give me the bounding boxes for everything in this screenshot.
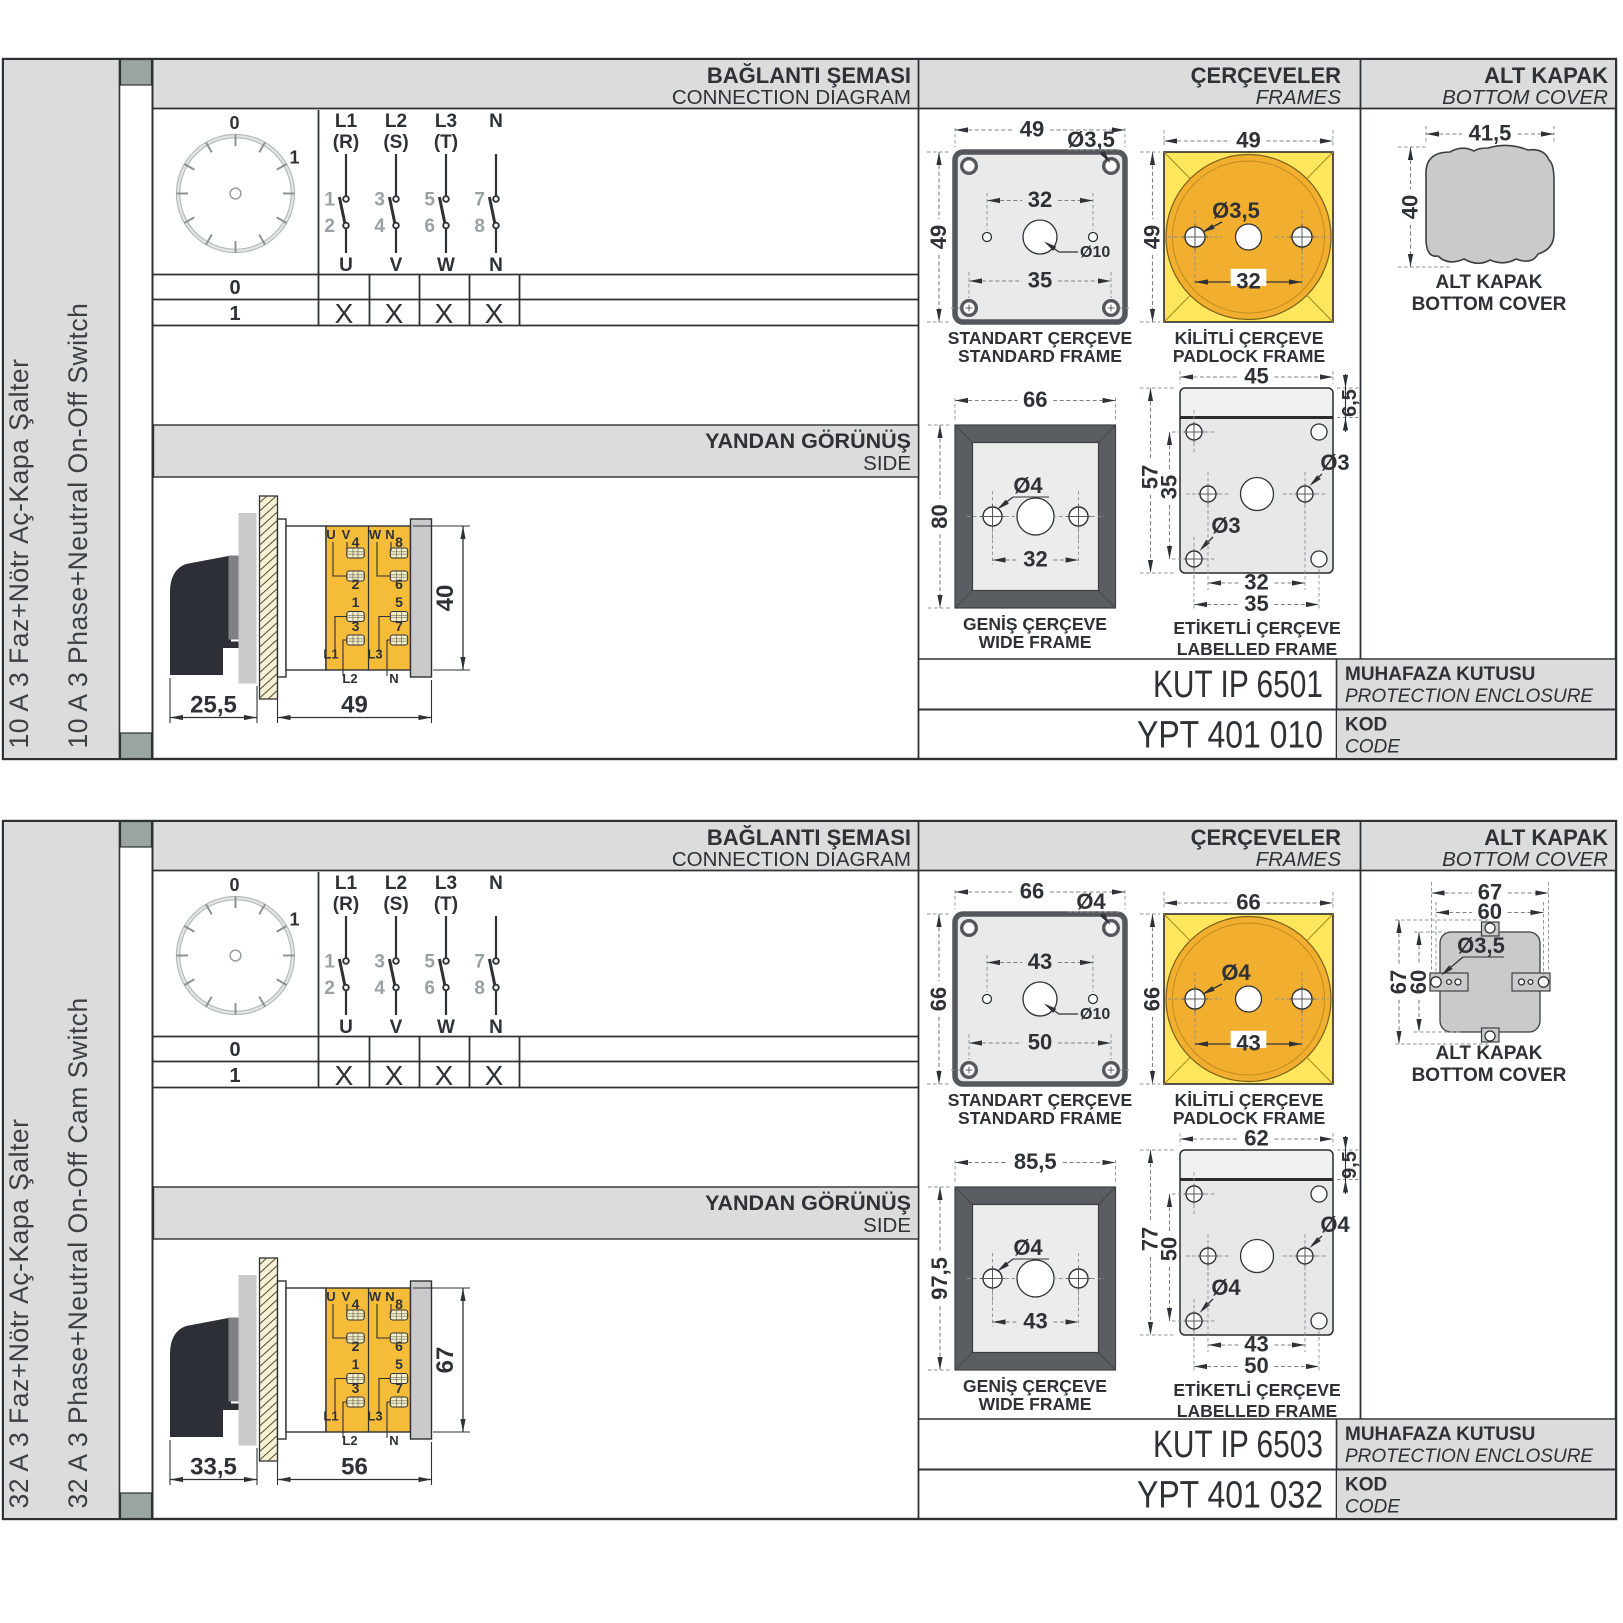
svg-text:W: W xyxy=(369,527,382,542)
svg-text:7: 7 xyxy=(395,618,403,634)
svg-text:1: 1 xyxy=(324,952,335,973)
svg-text:10 A 3 Phase+Neutral On-Off Sw: 10 A 3 Phase+Neutral On-Off Switch xyxy=(63,303,93,749)
svg-text:1: 1 xyxy=(324,190,335,211)
svg-text:8: 8 xyxy=(474,978,485,999)
svg-text:2: 2 xyxy=(352,576,360,592)
svg-text:X: X xyxy=(385,298,404,329)
svg-text:Ø4: Ø4 xyxy=(1076,889,1106,914)
svg-text:6: 6 xyxy=(424,216,435,237)
svg-text:25,5: 25,5 xyxy=(190,692,237,719)
svg-text:32: 32 xyxy=(1236,269,1260,294)
svg-text:KİLİTLİ ÇERÇEVE: KİLİTLİ ÇERÇEVE xyxy=(1175,328,1324,348)
svg-text:ETİKETLİ ÇERÇEVE: ETİKETLİ ÇERÇEVE xyxy=(1173,618,1340,638)
svg-text:FRAMES: FRAMES xyxy=(1256,848,1342,871)
svg-text:STANDARD FRAME: STANDARD FRAME xyxy=(958,346,1122,366)
svg-text:0: 0 xyxy=(229,277,240,299)
svg-text:8: 8 xyxy=(474,216,485,237)
svg-text:0: 0 xyxy=(229,875,239,895)
svg-text:35: 35 xyxy=(1244,591,1268,616)
svg-text:1: 1 xyxy=(229,1065,240,1087)
svg-text:BAĞLANTI ŞEMASI: BAĞLANTI ŞEMASI xyxy=(707,825,911,850)
svg-text:FRAMES: FRAMES xyxy=(1256,86,1342,109)
svg-text:L2: L2 xyxy=(342,1433,357,1448)
svg-text:YANDAN GÖRÜNÜŞ: YANDAN GÖRÜNÜŞ xyxy=(705,428,911,453)
svg-text:0: 0 xyxy=(229,1039,240,1061)
svg-text:62: 62 xyxy=(1244,1126,1268,1151)
svg-text:BOTTOM COVER: BOTTOM COVER xyxy=(1442,86,1608,109)
svg-text:10 A 3 Faz+Nötr Aç-Kapa Şalter: 10 A 3 Faz+Nötr Aç-Kapa Şalter xyxy=(4,359,34,749)
svg-text:49: 49 xyxy=(341,692,368,719)
svg-text:L3: L3 xyxy=(367,1409,382,1424)
svg-text:KUT IP 6501: KUT IP 6501 xyxy=(1153,664,1323,706)
svg-text:32: 32 xyxy=(1023,547,1047,572)
svg-text:(T): (T) xyxy=(434,894,458,915)
svg-text:3: 3 xyxy=(374,952,385,973)
svg-text:LABELLED FRAME: LABELLED FRAME xyxy=(1177,639,1337,659)
svg-text:X: X xyxy=(485,298,504,329)
svg-text:SIDE: SIDE xyxy=(863,1214,911,1237)
svg-text:1: 1 xyxy=(229,303,240,325)
svg-text:L1: L1 xyxy=(335,111,358,132)
svg-text:CONNECTION DIAGRAM: CONNECTION DIAGRAM xyxy=(672,848,911,871)
svg-text:U: U xyxy=(326,527,335,542)
svg-text:43: 43 xyxy=(1028,949,1052,974)
svg-text:L2: L2 xyxy=(385,111,407,132)
svg-text:97,5: 97,5 xyxy=(927,1257,952,1300)
svg-text:67: 67 xyxy=(432,1347,459,1374)
svg-text:L3: L3 xyxy=(435,111,457,132)
svg-text:L1: L1 xyxy=(335,873,358,894)
svg-text:49: 49 xyxy=(926,225,951,249)
svg-text:Ø4: Ø4 xyxy=(1320,1212,1350,1237)
svg-text:Ø3,5: Ø3,5 xyxy=(1067,127,1115,152)
svg-text:Ø3: Ø3 xyxy=(1211,513,1240,538)
svg-text:40: 40 xyxy=(1398,195,1423,219)
svg-text:80: 80 xyxy=(927,504,952,528)
svg-text:BAĞLANTI ŞEMASI: BAĞLANTI ŞEMASI xyxy=(707,63,911,88)
svg-text:N: N xyxy=(385,527,394,542)
svg-text:32 A 3 Faz+Nötr Aç-Kapa Şalter: 32 A 3 Faz+Nötr Aç-Kapa Şalter xyxy=(4,1119,34,1509)
svg-text:SIDE: SIDE xyxy=(863,452,911,475)
svg-text:V: V xyxy=(390,1017,403,1038)
svg-text:YANDAN GÖRÜNÜŞ: YANDAN GÖRÜNÜŞ xyxy=(705,1190,911,1215)
svg-text:3: 3 xyxy=(352,618,360,634)
svg-text:CODE: CODE xyxy=(1345,737,1400,758)
svg-text:56: 56 xyxy=(341,1454,368,1481)
svg-text:66: 66 xyxy=(1023,387,1047,412)
svg-text:1: 1 xyxy=(289,910,299,930)
svg-text:0: 0 xyxy=(229,113,239,133)
svg-text:(R): (R) xyxy=(333,894,359,915)
svg-text:L1: L1 xyxy=(323,647,338,662)
svg-text:KOD: KOD xyxy=(1345,715,1387,736)
svg-text:V: V xyxy=(390,255,403,276)
svg-text:43: 43 xyxy=(1023,1309,1047,1334)
svg-text:85,5: 85,5 xyxy=(1014,1149,1057,1174)
svg-text:3: 3 xyxy=(374,190,385,211)
svg-text:49: 49 xyxy=(1020,117,1044,142)
svg-text:L2: L2 xyxy=(385,873,407,894)
svg-text:66: 66 xyxy=(926,987,951,1011)
svg-text:L2: L2 xyxy=(342,671,357,686)
svg-text:U: U xyxy=(339,255,353,276)
svg-text:40: 40 xyxy=(432,585,459,612)
svg-text:60: 60 xyxy=(1406,970,1431,994)
svg-text:N: N xyxy=(489,255,503,276)
svg-text:Ø3,5: Ø3,5 xyxy=(1457,933,1505,958)
svg-text:50: 50 xyxy=(1244,1353,1268,1378)
svg-text:50: 50 xyxy=(1028,1030,1052,1055)
svg-text:66: 66 xyxy=(1236,890,1260,915)
svg-text:N: N xyxy=(489,111,503,132)
svg-text:5: 5 xyxy=(395,1356,403,1372)
svg-text:ÇERÇEVELER: ÇERÇEVELER xyxy=(1191,825,1341,850)
svg-text:7: 7 xyxy=(474,952,485,973)
svg-text:WIDE FRAME: WIDE FRAME xyxy=(979,1394,1092,1414)
svg-text:66: 66 xyxy=(1020,879,1044,904)
svg-text:U: U xyxy=(326,1289,335,1304)
svg-text:Ø4: Ø4 xyxy=(1211,1275,1241,1300)
svg-text:Ø10: Ø10 xyxy=(1080,244,1110,261)
svg-text:N: N xyxy=(385,1289,394,1304)
svg-text:PROTECTION ENCLOSURE: PROTECTION ENCLOSURE xyxy=(1345,1446,1593,1467)
svg-text:MUHAFAZA KUTUSU: MUHAFAZA KUTUSU xyxy=(1345,1424,1535,1445)
svg-text:N: N xyxy=(489,873,503,894)
svg-text:WIDE FRAME: WIDE FRAME xyxy=(979,632,1092,652)
svg-text:Ø3: Ø3 xyxy=(1320,450,1349,475)
svg-text:6: 6 xyxy=(395,576,403,592)
svg-text:BOTTOM COVER: BOTTOM COVER xyxy=(1442,848,1608,871)
svg-text:LABELLED FRAME: LABELLED FRAME xyxy=(1177,1401,1337,1421)
svg-text:(T): (T) xyxy=(434,132,458,153)
svg-text:L1: L1 xyxy=(323,1409,338,1424)
svg-text:8: 8 xyxy=(395,534,403,550)
svg-text:32 A 3 Phase+Neutral On-Off Ca: 32 A 3 Phase+Neutral On-Off Cam Switch xyxy=(63,997,93,1508)
svg-text:W: W xyxy=(369,1289,382,1304)
svg-text:2: 2 xyxy=(324,216,335,237)
svg-text:X: X xyxy=(385,1060,404,1091)
svg-text:43: 43 xyxy=(1236,1031,1260,1056)
svg-text:6: 6 xyxy=(424,978,435,999)
svg-text:W: W xyxy=(437,255,455,276)
svg-text:4: 4 xyxy=(374,978,385,999)
svg-text:1: 1 xyxy=(352,594,360,610)
svg-text:YPT 401 010: YPT 401 010 xyxy=(1137,715,1323,757)
svg-text:6: 6 xyxy=(395,1338,403,1354)
svg-text:CODE: CODE xyxy=(1345,1497,1400,1518)
svg-text:4: 4 xyxy=(352,1296,360,1312)
svg-text:45: 45 xyxy=(1244,364,1268,389)
svg-text:V: V xyxy=(342,1289,351,1304)
svg-text:ALT KAPAK: ALT KAPAK xyxy=(1436,1043,1543,1064)
svg-text:32: 32 xyxy=(1028,187,1052,212)
svg-text:Ø3,5: Ø3,5 xyxy=(1212,198,1260,223)
svg-text:ALT KAPAK: ALT KAPAK xyxy=(1484,63,1608,88)
svg-text:ALT KAPAK: ALT KAPAK xyxy=(1436,272,1543,293)
svg-text:PROTECTION ENCLOSURE: PROTECTION ENCLOSURE xyxy=(1345,686,1593,707)
svg-text:X: X xyxy=(435,1060,454,1091)
svg-text:4: 4 xyxy=(352,534,360,550)
svg-text:Ø4: Ø4 xyxy=(1013,1235,1043,1260)
svg-text:35: 35 xyxy=(1157,475,1182,499)
svg-text:4: 4 xyxy=(374,216,385,237)
svg-text:X: X xyxy=(335,1060,354,1091)
svg-text:1: 1 xyxy=(352,1356,360,1372)
svg-text:1: 1 xyxy=(289,148,299,168)
svg-text:MUHAFAZA KUTUSU: MUHAFAZA KUTUSU xyxy=(1345,664,1535,685)
svg-text:W: W xyxy=(437,1017,455,1038)
svg-text:9,5: 9,5 xyxy=(1339,1151,1361,1179)
svg-text:N: N xyxy=(389,1433,398,1448)
svg-text:8: 8 xyxy=(395,1296,403,1312)
svg-text:BOTTOM COVER: BOTTOM COVER xyxy=(1412,1065,1567,1086)
svg-text:3: 3 xyxy=(352,1380,360,1396)
svg-text:KUT IP 6503: KUT IP 6503 xyxy=(1153,1424,1323,1466)
svg-text:(R): (R) xyxy=(333,132,359,153)
svg-text:KİLİTLİ ÇERÇEVE: KİLİTLİ ÇERÇEVE xyxy=(1175,1090,1324,1110)
svg-text:U: U xyxy=(339,1017,353,1038)
svg-text:L3: L3 xyxy=(435,873,457,894)
svg-text:Ø4: Ø4 xyxy=(1221,960,1251,985)
svg-text:66: 66 xyxy=(1140,987,1165,1011)
svg-text:N: N xyxy=(489,1017,503,1038)
svg-text:CONNECTION DIAGRAM: CONNECTION DIAGRAM xyxy=(672,86,911,109)
svg-text:STANDART ÇERÇEVE: STANDART ÇERÇEVE xyxy=(948,1090,1132,1110)
svg-text:X: X xyxy=(435,298,454,329)
svg-text:N: N xyxy=(389,671,398,686)
svg-text:STANDARD FRAME: STANDARD FRAME xyxy=(958,1108,1122,1128)
svg-text:V: V xyxy=(342,527,351,542)
svg-text:7: 7 xyxy=(474,190,485,211)
svg-text:ALT KAPAK: ALT KAPAK xyxy=(1484,825,1608,850)
svg-text:STANDART ÇERÇEVE: STANDART ÇERÇEVE xyxy=(948,328,1132,348)
svg-text:(S): (S) xyxy=(383,894,408,915)
svg-text:L3: L3 xyxy=(367,647,382,662)
svg-text:7: 7 xyxy=(395,1380,403,1396)
svg-text:6,5: 6,5 xyxy=(1339,389,1361,417)
svg-text:33,5: 33,5 xyxy=(190,1454,237,1481)
svg-text:ÇERÇEVELER: ÇERÇEVELER xyxy=(1191,63,1341,88)
svg-text:5: 5 xyxy=(424,952,435,973)
svg-text:5: 5 xyxy=(395,594,403,610)
svg-text:ETİKETLİ ÇERÇEVE: ETİKETLİ ÇERÇEVE xyxy=(1173,1380,1340,1400)
svg-text:KOD: KOD xyxy=(1345,1475,1387,1496)
svg-text:BOTTOM COVER: BOTTOM COVER xyxy=(1412,294,1567,315)
svg-text:YPT 401 032: YPT 401 032 xyxy=(1137,1475,1323,1517)
svg-text:35: 35 xyxy=(1028,268,1052,293)
svg-text:(S): (S) xyxy=(383,132,408,153)
svg-text:5: 5 xyxy=(424,190,435,211)
svg-text:2: 2 xyxy=(352,1338,360,1354)
svg-text:2: 2 xyxy=(324,978,335,999)
svg-text:49: 49 xyxy=(1140,225,1165,249)
svg-text:GENİŞ ÇERÇEVE: GENİŞ ÇERÇEVE xyxy=(963,1376,1107,1396)
svg-text:X: X xyxy=(485,1060,504,1091)
svg-text:GENİŞ ÇERÇEVE: GENİŞ ÇERÇEVE xyxy=(963,614,1107,634)
svg-text:49: 49 xyxy=(1236,128,1260,153)
svg-text:X: X xyxy=(335,298,354,329)
svg-text:41,5: 41,5 xyxy=(1469,121,1512,146)
svg-text:Ø4: Ø4 xyxy=(1013,473,1043,498)
svg-text:50: 50 xyxy=(1157,1237,1182,1261)
svg-text:Ø10: Ø10 xyxy=(1080,1006,1110,1023)
